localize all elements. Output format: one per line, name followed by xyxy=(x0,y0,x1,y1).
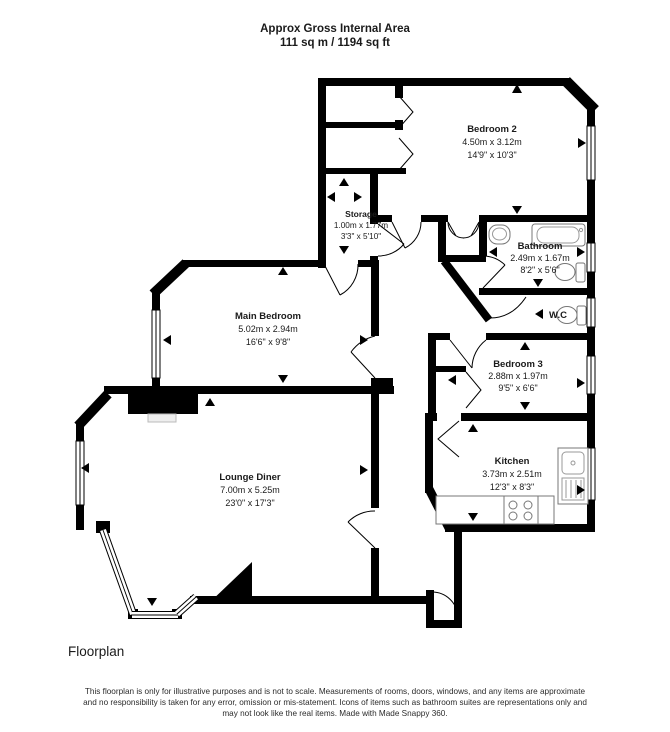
window-bay xyxy=(103,530,196,615)
fireplace-icon xyxy=(148,414,176,422)
arrow-up-icon xyxy=(278,267,288,275)
sink-unit-icon xyxy=(558,448,588,504)
room-dim-metric: 2.49m x 1.67m xyxy=(510,253,570,263)
room-dim-metric: 2.88m x 1.97m xyxy=(488,371,548,381)
window-bedroom3 xyxy=(587,356,595,394)
disclaimer-line-2: and no responsibility is taken for any e… xyxy=(83,698,587,707)
room-label-kitchen: Kitchen 3.73m x 2.51m 12'3" x 8'3" xyxy=(482,456,542,492)
room-dim-metric: 7.00m x 5.25m xyxy=(220,485,280,495)
arrow-left-icon xyxy=(327,192,335,202)
arrow-right-icon xyxy=(360,465,368,475)
floorplan-svg: Approx Gross Internal Area 111 sq m / 11… xyxy=(0,0,670,732)
window-lounge-left xyxy=(76,441,84,505)
disclaimer: This floorplan is only for illustrative … xyxy=(83,687,587,718)
room-name: Bedroom 2 xyxy=(467,124,517,135)
door-bathroom xyxy=(483,256,505,288)
room-dim-imperial: 16'6" x 9'8" xyxy=(246,337,290,347)
room-labels: Bedroom 2 4.50m x 3.12m 14'9" x 10'3" St… xyxy=(219,124,569,508)
window-bedroom2 xyxy=(587,126,595,180)
floorplan-page: Approx Gross Internal Area 111 sq m / 11… xyxy=(0,0,670,732)
room-name: Storage xyxy=(345,209,377,219)
window-main-bedroom xyxy=(152,310,160,378)
arrow-right-icon xyxy=(360,335,368,345)
disclaimer-line-3: may not look like the real items. Made w… xyxy=(222,709,447,718)
door-kitchen-bifold xyxy=(438,421,459,457)
disclaimer-line-1: This floorplan is only for illustrative … xyxy=(85,687,586,696)
floorplan-caption: Floorplan xyxy=(68,644,124,659)
arrow-right-icon xyxy=(577,378,585,388)
gross-internal-area-value: 111 sq m / 1194 sq ft xyxy=(280,37,390,49)
room-label-lounge: Lounge Diner 7.00m x 5.25m 23'0" x 17'3" xyxy=(219,472,281,508)
arrow-down-icon xyxy=(520,402,530,410)
arrow-up-icon xyxy=(520,342,530,350)
doors xyxy=(324,96,526,618)
arrow-down-icon xyxy=(278,375,288,383)
arrow-up-icon xyxy=(205,398,215,406)
arrow-left-icon xyxy=(535,309,543,319)
room-dim-metric: 4.50m x 3.12m xyxy=(462,137,522,147)
arrow-left-icon xyxy=(448,375,456,385)
door-lounge xyxy=(348,511,375,548)
arrow-right-icon xyxy=(354,192,362,202)
arrow-right-icon xyxy=(577,247,585,257)
hob-icon xyxy=(504,496,538,524)
room-dim-imperial: 3'3" x 5'10" xyxy=(341,232,381,241)
room-dim-metric: 5.02m x 2.94m xyxy=(238,324,298,334)
arrow-up-icon xyxy=(468,424,478,432)
room-dim-imperial: 9'5" x 6'6" xyxy=(498,383,537,393)
room-dim-imperial: 8'2" x 5'6" xyxy=(520,265,559,275)
gross-internal-area-title: Approx Gross Internal Area xyxy=(260,23,410,35)
room-label-bedroom2: Bedroom 2 4.50m x 3.12m 14'9" x 10'3" xyxy=(462,124,522,160)
door-hall-double xyxy=(448,222,479,238)
room-name: Bathroom xyxy=(518,241,563,252)
room-name: Main Bedroom xyxy=(235,311,301,322)
arrow-left-icon xyxy=(163,335,171,345)
room-name: Kitchen xyxy=(495,456,530,467)
room-dim-imperial: 12'3" x 8'3" xyxy=(490,482,534,492)
arrow-left-icon xyxy=(489,247,497,257)
arrow-down-icon xyxy=(147,598,157,606)
room-dim-metric: 1.00m x 1.77m xyxy=(334,221,388,230)
arrow-down-icon xyxy=(512,206,522,214)
room-label-main-bedroom: Main Bedroom 5.02m x 2.94m 16'6" x 9'8" xyxy=(235,311,301,347)
room-dim-metric: 3.73m x 2.51m xyxy=(482,469,542,479)
door-closet2-bifold xyxy=(399,138,413,170)
arrow-down-icon xyxy=(533,279,543,287)
arrow-down-icon xyxy=(339,246,349,254)
room-name: Bedroom 3 xyxy=(493,359,543,370)
door-hall-left xyxy=(392,222,421,248)
door-main-bedroom-top xyxy=(324,264,358,295)
arrow-up-icon xyxy=(339,178,349,186)
room-label-wc: W.C xyxy=(549,310,567,321)
window-wc xyxy=(587,298,595,327)
room-label-bedroom3: Bedroom 3 2.88m x 1.97m 9'5" x 6'6" xyxy=(488,359,548,393)
room-dim-imperial: 23'0" x 17'3" xyxy=(225,498,274,508)
window-bathroom xyxy=(587,243,595,272)
door-wc xyxy=(490,297,526,318)
room-name: W.C xyxy=(549,310,567,321)
arrow-right-icon xyxy=(578,138,586,148)
door-bedroom3-closet-bifold xyxy=(466,372,481,408)
door-bedroom3 xyxy=(450,340,486,368)
basin-icon xyxy=(489,225,510,244)
room-label-storage: Storage 1.00m x 1.77m 3'3" x 5'10" xyxy=(334,209,388,241)
room-dim-imperial: 14'9" x 10'3" xyxy=(467,150,516,160)
room-name: Lounge Diner xyxy=(219,472,281,483)
